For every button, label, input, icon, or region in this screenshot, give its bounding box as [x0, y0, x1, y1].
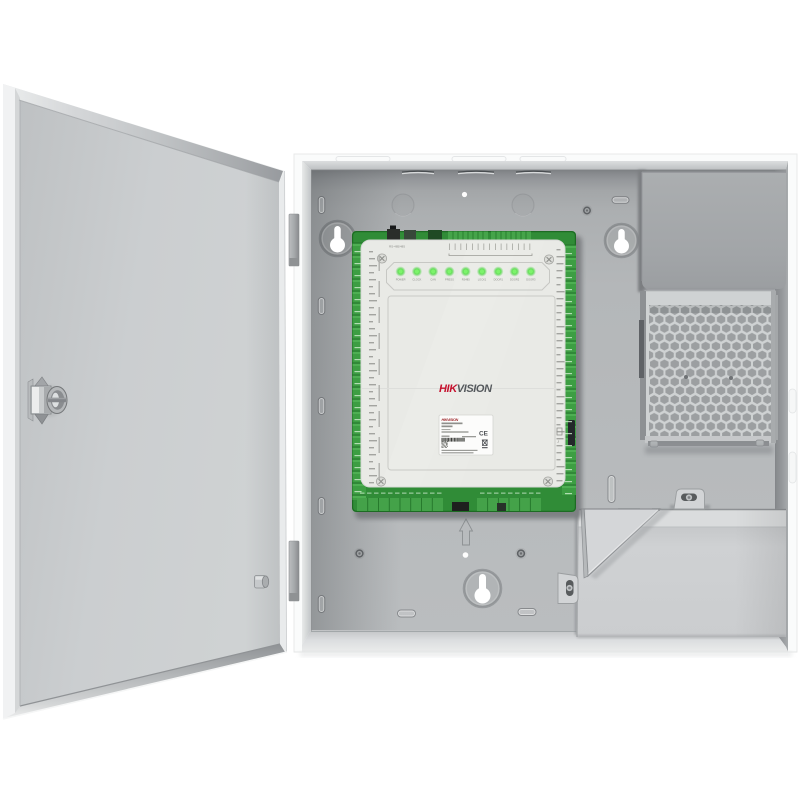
svg-text:PRESS: PRESS: [445, 278, 454, 282]
svg-text:POWER: POWER: [396, 278, 406, 282]
svg-text:HIKVISION: HIKVISION: [439, 383, 493, 395]
svg-text:CE: CE: [479, 431, 489, 438]
svg-text:CAN: CAN: [430, 278, 436, 282]
svg-text:DOOR2: DOOR2: [510, 278, 520, 282]
svg-text:RS-485/485: RS-485/485: [389, 245, 405, 249]
svg-text:DOOR3: DOOR3: [526, 278, 536, 282]
svg-text:DOOR1: DOOR1: [494, 278, 504, 282]
svg-text:CLOCK: CLOCK: [412, 278, 421, 282]
svg-text:HIKVISION: HIKVISION: [442, 418, 459, 422]
svg-text:RS485: RS485: [462, 278, 470, 282]
svg-text:LOCK1: LOCK1: [478, 278, 487, 282]
